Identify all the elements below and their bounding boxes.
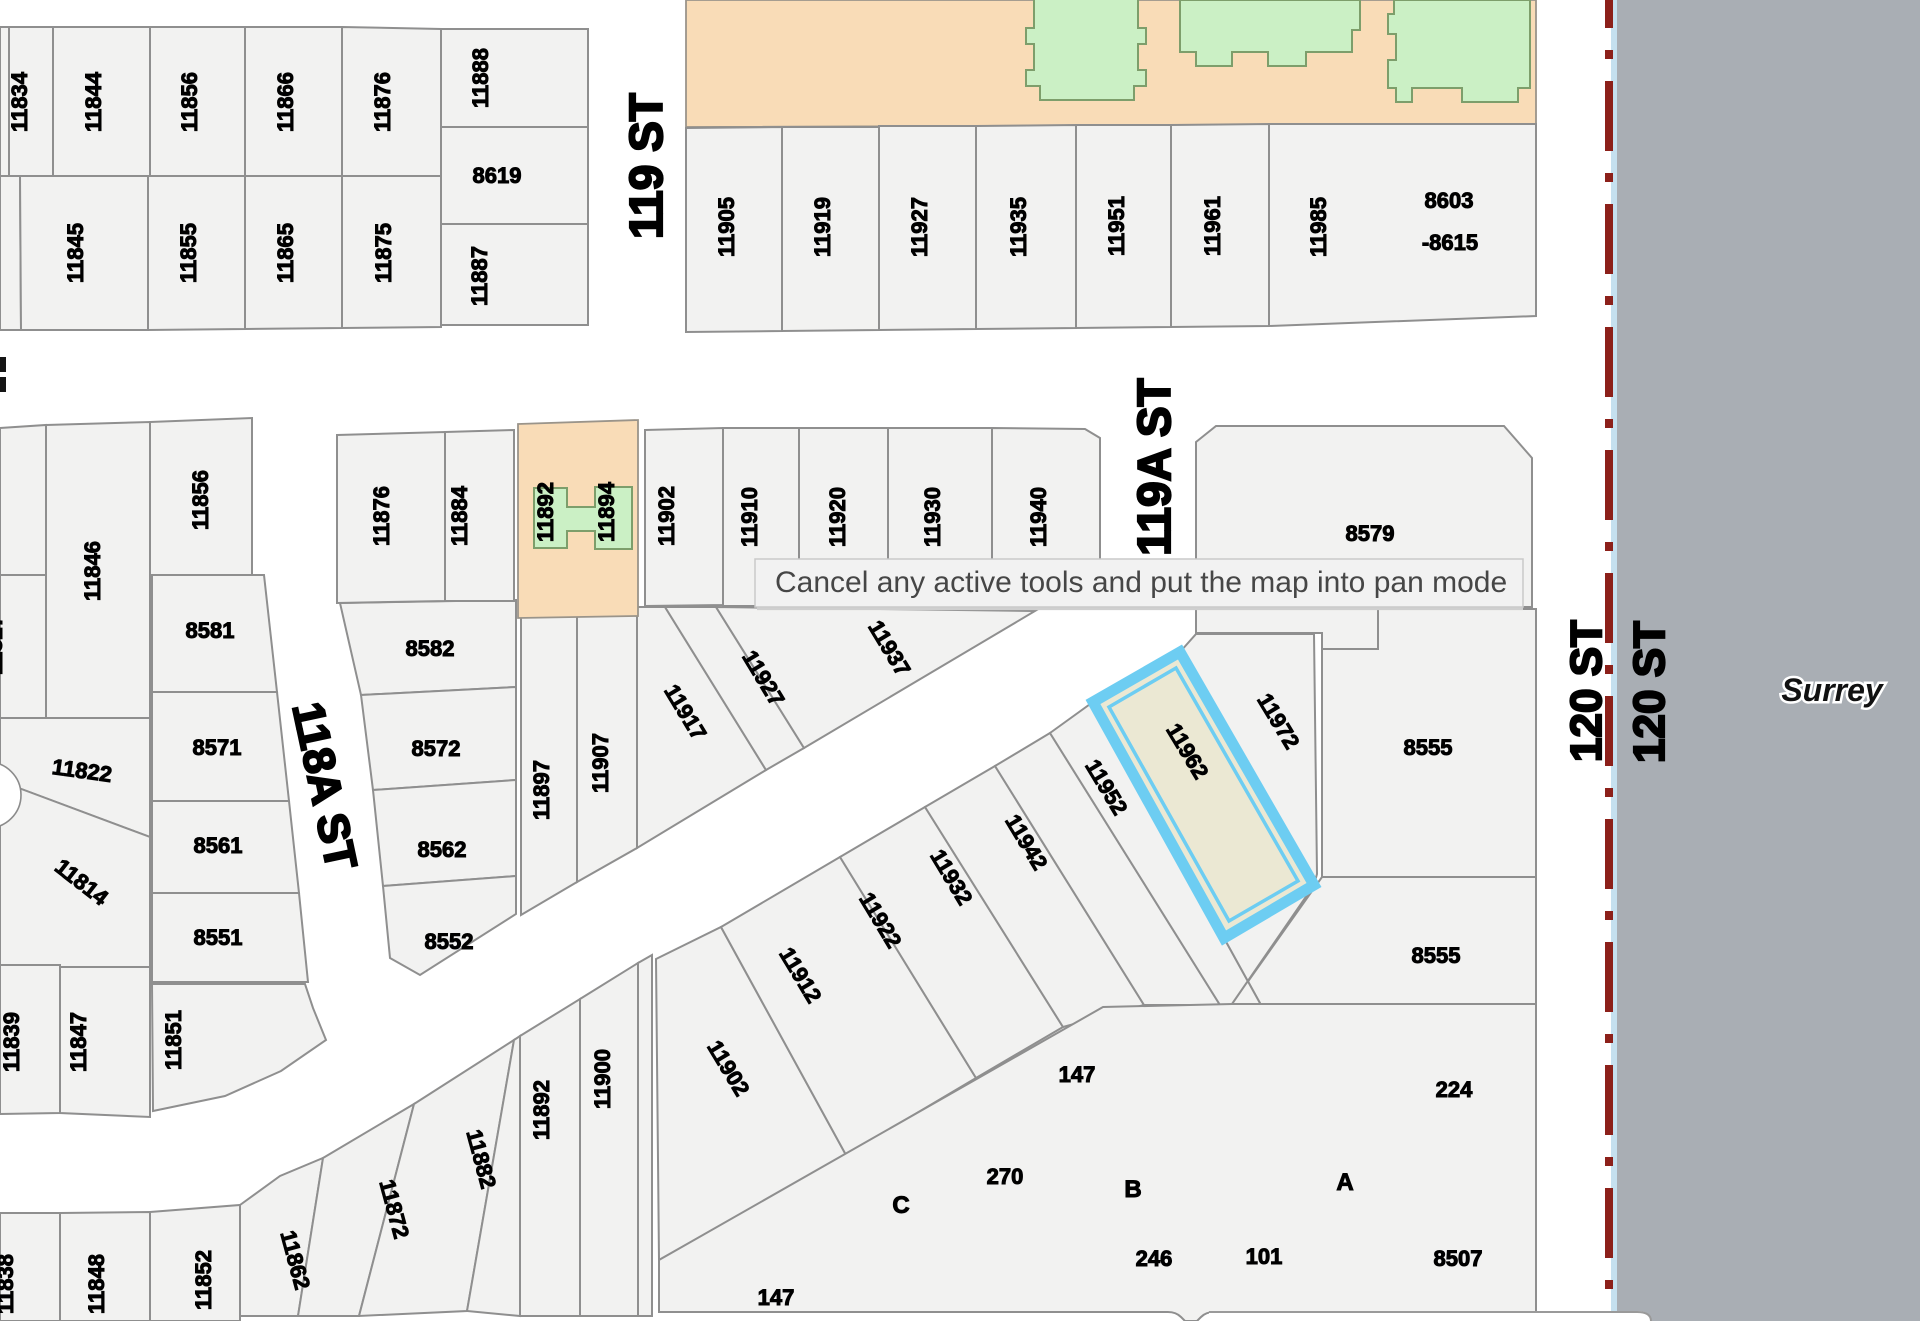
svg-text:147: 147 (758, 1285, 795, 1310)
svg-text:8581: 8581 (186, 618, 235, 643)
svg-text:11834: 11834 (7, 71, 32, 132)
svg-text:11851: 11851 (161, 1010, 186, 1070)
svg-text:11902: 11902 (654, 486, 679, 546)
svg-text:224: 224 (1436, 1077, 1473, 1102)
svg-text:11930: 11930 (920, 487, 945, 547)
svg-text:11905: 11905 (714, 197, 739, 257)
svg-text:11927: 11927 (907, 197, 932, 257)
svg-text:Cancel any active tools and pu: Cancel any active tools and put the map … (775, 566, 1507, 599)
svg-text:8582: 8582 (406, 636, 455, 661)
svg-text:8507: 8507 (1434, 1246, 1483, 1271)
svg-text:8552: 8552 (425, 929, 474, 954)
svg-text:11866: 11866 (273, 72, 298, 132)
svg-text:11892: 11892 (533, 482, 558, 542)
svg-text:11827: 11827 (0, 615, 7, 675)
svg-text:8561: 8561 (194, 833, 243, 858)
svg-text:A: A (1336, 1169, 1353, 1196)
svg-text:11856: 11856 (177, 72, 202, 132)
svg-text:11846: 11846 (80, 541, 105, 601)
svg-text:11894: 11894 (594, 481, 619, 542)
svg-text:11985: 11985 (1306, 197, 1331, 257)
svg-text:8562: 8562 (418, 837, 467, 862)
svg-text:11935: 11935 (1006, 197, 1031, 257)
svg-text:8619: 8619 (473, 163, 522, 188)
svg-text:11887: 11887 (467, 246, 492, 306)
svg-text:11892: 11892 (529, 1080, 554, 1140)
svg-text:11847: 11847 (66, 1012, 91, 1072)
svg-text:8555: 8555 (1404, 735, 1453, 760)
svg-text:8551: 8551 (194, 925, 243, 950)
svg-text:147: 147 (1059, 1062, 1096, 1087)
svg-text:11910: 11910 (737, 487, 762, 547)
svg-text:-8615: -8615 (1422, 230, 1478, 255)
svg-text:119 ST: 119 ST (620, 93, 672, 239)
svg-text:11907: 11907 (588, 733, 613, 793)
svg-text:246: 246 (1136, 1246, 1173, 1271)
svg-text:11856: 11856 (188, 470, 213, 530)
svg-text:8572: 8572 (412, 736, 461, 761)
svg-text:11920: 11920 (825, 487, 850, 547)
svg-text:11875: 11875 (371, 223, 396, 283)
svg-text:11900: 11900 (590, 1049, 615, 1109)
svg-text:11845: 11845 (63, 223, 88, 283)
svg-text:11838: 11838 (0, 1254, 18, 1314)
svg-text:11865: 11865 (273, 223, 298, 283)
svg-text:11919: 11919 (810, 197, 835, 257)
svg-text:11848: 11848 (84, 1254, 109, 1314)
svg-text:11940: 11940 (1026, 487, 1051, 547)
svg-text:11876: 11876 (369, 486, 394, 546)
svg-text:11876: 11876 (370, 72, 395, 132)
svg-text:120 ST: 120 ST (1625, 621, 1674, 763)
svg-text:11961: 11961 (1200, 196, 1225, 256)
svg-text:120 ST: 120 ST (1562, 620, 1611, 762)
svg-text:C: C (892, 1192, 909, 1219)
svg-text:11951: 11951 (1104, 196, 1129, 256)
svg-text:8603: 8603 (1425, 188, 1474, 213)
svg-text:8555: 8555 (1412, 943, 1461, 968)
svg-text:11888: 11888 (468, 48, 493, 108)
svg-text:11897: 11897 (529, 760, 554, 820)
svg-text:11884: 11884 (447, 485, 472, 546)
svg-text:Surrey: Surrey (1781, 672, 1885, 708)
svg-text:270: 270 (987, 1164, 1024, 1189)
svg-text:101: 101 (1246, 1244, 1283, 1269)
svg-text:11839: 11839 (0, 1012, 24, 1072)
svg-text:11855: 11855 (176, 223, 201, 283)
svg-text:8571: 8571 (193, 735, 242, 760)
svg-text:11844: 11844 (81, 71, 106, 132)
svg-text:B: B (1124, 1176, 1141, 1203)
svg-text:119A ST: 119A ST (1128, 378, 1180, 555)
svg-text:11852: 11852 (191, 1250, 216, 1310)
svg-text:8579: 8579 (1346, 521, 1395, 546)
